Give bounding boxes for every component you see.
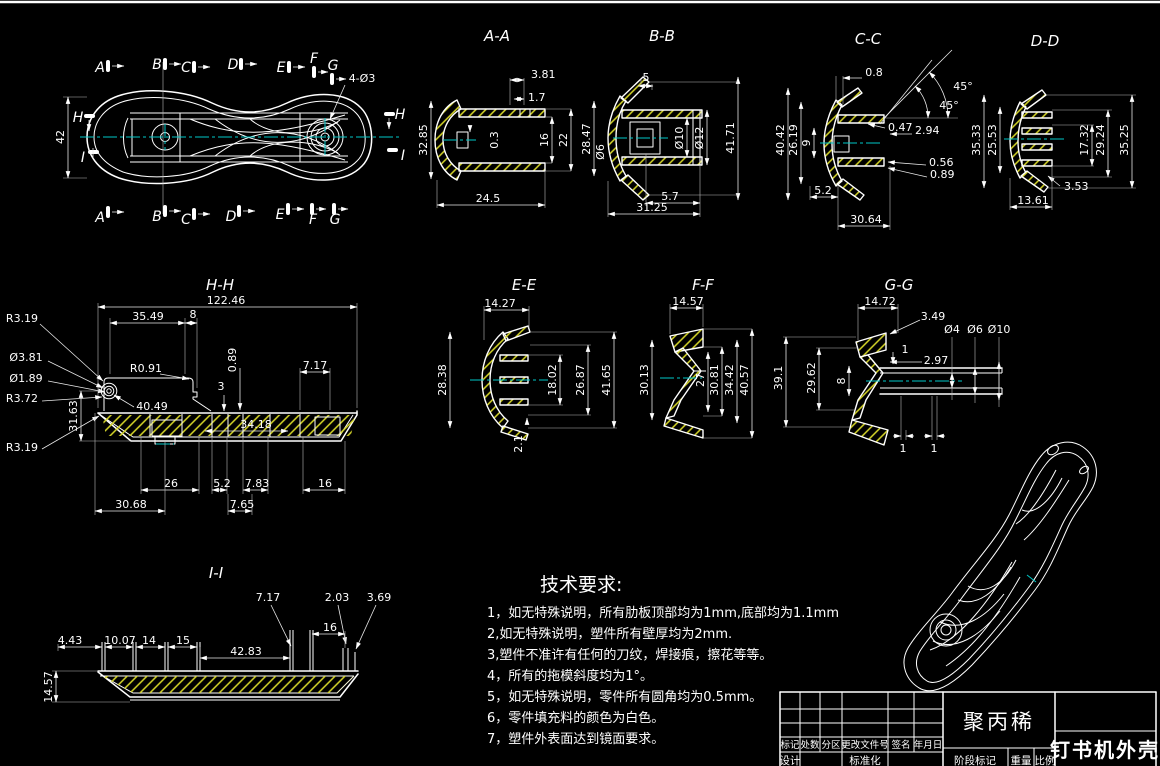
title-block-weight: 重量 — [1011, 754, 1033, 766]
dim-label: 18.02 — [546, 364, 559, 396]
dim-label: 35.33 — [970, 124, 983, 156]
dim-label: 16 — [323, 621, 337, 634]
cad-drawing: 42 4-Ø3 A B C D E F G A B C D E F G H — [0, 0, 1160, 766]
part-name: 钉书机外壳 — [1050, 738, 1160, 762]
dim-label: 35.25 — [1118, 124, 1131, 156]
title-block-col: 处数 — [800, 739, 820, 751]
dim-label: 42 — [54, 130, 67, 144]
dim-label: 2.1 — [512, 435, 525, 453]
tech-requirement-item: 2,如无特殊说明，塑件所有壁厚均为2mm. — [487, 626, 732, 642]
dim-label: 26.87 — [574, 364, 587, 396]
section-view-g-g: G-G 14.72 3.49 Ø4 Ø6 Ø10 1 2.97 8 39.1 2… — [772, 276, 1010, 455]
section-letter: F — [309, 212, 318, 228]
dim-label: 2.03 — [325, 591, 350, 604]
dim-label: 40.49 — [136, 400, 168, 413]
section-view-f-f: F-F 14.57 30.13 27 30.81 34.42 40.57 — [638, 276, 752, 438]
section-letter: H — [395, 107, 406, 123]
cad-drawing-canvas: 42 4-Ø3 A B C D E F G A B C D E F G H — [0, 0, 1160, 766]
material-name: 聚丙稀 — [963, 710, 1035, 734]
dim-label: 7.17 — [256, 591, 281, 604]
dim-label: R0.91 — [130, 362, 162, 375]
dim-label: R3.19 — [6, 441, 38, 454]
tech-requirements-title: 技术要求: — [540, 574, 622, 596]
dim-label: 8 — [835, 378, 848, 385]
section-letter: C — [181, 212, 191, 228]
dim-label: 8 — [190, 308, 197, 321]
dim-label: 1 — [902, 343, 909, 356]
dim-label: 3.53 — [1064, 180, 1089, 193]
dim-label: Ø1.89 — [9, 372, 42, 385]
dim-label: 5 — [643, 71, 650, 84]
dim-label: 14.27 — [484, 297, 516, 310]
section-view-b-b: B-B 5 28.47 Ø6 Ø10 Ø12 41.71 5.7 31.25 — [580, 27, 738, 217]
dim-label: 4-Ø3 — [349, 72, 376, 85]
section-letter: B — [152, 209, 162, 225]
dim-label: 30.13 — [638, 364, 651, 396]
dim-label: 14.57 — [672, 295, 704, 308]
section-view-d-d: D-D 35.33 25.53 17.32 29.24 35.25 3.53 1… — [970, 32, 1136, 210]
title-block-stage: 阶段标记 — [954, 754, 996, 766]
dim-label: 32.85 — [417, 124, 430, 156]
tech-requirement-item: 3,塑件不准许有任何的刀纹，焊接痕，擦花等等。 — [487, 647, 772, 663]
dim-label: 9 — [800, 140, 813, 147]
dim-label: 3.49 — [921, 310, 946, 323]
section-markers-top: A B C D E F G — [94, 51, 346, 85]
isometric-view — [904, 442, 1096, 691]
title-block-col: 年月日 — [914, 739, 943, 751]
dim-label: 2.94 — [915, 124, 940, 137]
dim-label: 29.24 — [1094, 124, 1107, 156]
dim-label: 45° — [939, 99, 959, 112]
title-block: 标记 处数 分区 更改文件号 签名 年月日 设计 标准化 聚丙稀 阶段标记 重量… — [780, 692, 1160, 766]
section-letter: A — [94, 210, 105, 226]
title-block-design: 设计 — [780, 754, 801, 766]
dim-label: Ø10 — [988, 323, 1011, 336]
dim-label: 16 — [538, 133, 551, 147]
dim-label: Ø12 — [693, 127, 706, 150]
dim-label: 15 — [176, 634, 190, 647]
dim-label: 22 — [557, 133, 570, 147]
dim-label: 5.2 — [814, 184, 832, 197]
dim-label: 3.81 — [531, 68, 556, 81]
section-letter: F — [310, 51, 319, 67]
section-letter: E — [276, 207, 285, 223]
dim-label: 28.47 — [580, 123, 593, 155]
view-title: F-F — [692, 276, 714, 294]
dim-label: 25.53 — [986, 124, 999, 156]
section-view-c-c: C-C 0.8 45° 45° 0.47 2.94 0.56 0.89 40.4… — [774, 30, 973, 230]
section-letter: D — [228, 57, 239, 73]
dim-label: 30.81 — [708, 364, 721, 396]
section-letter: I — [401, 148, 405, 164]
dim-label: R3.19 — [6, 312, 38, 325]
dim-label: 14.72 — [864, 295, 896, 308]
section-letter: C — [181, 60, 191, 76]
dim-label: 26.19 — [787, 124, 800, 156]
dim-label: 29.62 — [805, 362, 818, 394]
dim-label: 24.5 — [476, 192, 501, 205]
dim-label: 4.43 — [58, 634, 83, 647]
dim-label: 31.25 — [636, 201, 668, 214]
dim-label: 26 — [164, 477, 178, 490]
dim-label: 0.89 — [930, 168, 955, 181]
view-title: G-G — [885, 276, 914, 294]
view-title: C-C — [855, 30, 882, 48]
tech-requirement-item: 1，如无特殊说明，所有肋板顶部均为1mm,底部均为1.1mm — [487, 605, 839, 621]
dim-label: 30.68 — [115, 498, 147, 511]
dim-label: Ø10 — [673, 127, 686, 150]
title-block-col: 分区 — [821, 740, 841, 751]
plan-view: 42 4-Ø3 A B C D E F G A B C D E F G H — [54, 51, 406, 228]
dim-label: 3.69 — [367, 591, 392, 604]
dim-label: 2.97 — [924, 354, 949, 367]
dim-label: Ø6 — [594, 144, 607, 160]
dim-label: 31.63 — [67, 400, 80, 432]
dim-label: 3 — [218, 380, 225, 393]
dim-label: 1 — [900, 442, 907, 455]
dim-label: 122.46 — [207, 294, 246, 307]
view-title: B-B — [649, 27, 675, 45]
dim-label: 5.2 — [213, 477, 231, 490]
dim-label: 0.8 — [865, 66, 883, 79]
section-letter: I — [81, 150, 85, 166]
dim-label: 42.83 — [230, 645, 262, 658]
dim-label: 7.65 — [230, 498, 255, 511]
section-letter: B — [152, 57, 162, 73]
dim-label: 40.42 — [774, 124, 787, 156]
dim-label: 14 — [142, 634, 156, 647]
dim-label: 13.61 — [1017, 194, 1049, 207]
tech-requirement-item: 7，塑件外表面达到镜面要求。 — [487, 732, 664, 747]
view-title: I-I — [209, 564, 224, 582]
tech-requirement-item: 6，零件填充料的颜色为白色。 — [487, 710, 664, 726]
view-title: A-A — [483, 27, 510, 45]
dim-label: 10.07 — [104, 634, 136, 647]
dim-label: 34.42 — [723, 364, 736, 396]
dim-label: 27 — [694, 373, 707, 387]
dim-label: 35.49 — [132, 310, 164, 323]
section-letter: D — [226, 209, 237, 225]
tech-requirements: 技术要求: 1，如无特殊说明，所有肋板顶部均为1mm,底部均为1.1mm 2,如… — [487, 574, 839, 747]
title-block-col: 签名 — [891, 739, 910, 751]
dim-label: 7.17 — [303, 359, 328, 372]
dim-label: 16 — [318, 477, 332, 490]
dim-label: 17.32 — [1078, 124, 1091, 156]
view-title: H-H — [206, 276, 234, 294]
dim-label: 41.65 — [600, 364, 613, 396]
section-letter: H — [73, 110, 84, 126]
dim-label: 14.57 — [42, 671, 55, 703]
view-title: D-D — [1031, 32, 1060, 50]
section-view-i-i: I-I 7.17 2.03 3.69 16 4.43 10.07 14 15 4… — [42, 564, 391, 703]
dim-label: 28.38 — [436, 364, 449, 396]
dim-label: 1 — [931, 442, 938, 455]
dim-label: 0.47 — [888, 121, 913, 134]
dim-label: 30.64 — [850, 213, 882, 226]
section-letter: G — [328, 58, 339, 74]
dim-label: 41.71 — [724, 122, 737, 154]
dim-label: 0.3 — [488, 131, 501, 149]
section-letter: E — [277, 60, 286, 76]
title-block-standard: 标准化 — [849, 754, 881, 766]
tech-requirement-item: 4，所有的拖模斜度均为1°。 — [487, 668, 653, 684]
dim-label: Ø3.81 — [9, 351, 42, 364]
dim-label: R3.72 — [6, 392, 38, 405]
section-letter: A — [94, 60, 105, 76]
dim-label: 0.89 — [226, 348, 239, 373]
section-view-a-a: A-A 3.81 1.7 32.85 0.3 16 22 24.5 — [417, 27, 571, 208]
view-title: E-E — [512, 276, 537, 294]
dim-label: 7.83 — [245, 477, 270, 490]
dim-label: 40.57 — [738, 364, 751, 396]
dim-label: Ø4 — [944, 323, 960, 336]
section-view-e-e: E-E 14.27 28.38 18.02 26.87 41.65 2.1 — [436, 276, 617, 453]
dim-label: Ø6 — [967, 323, 983, 336]
section-view-h-h: H-H 122.46 35.49 8 R3.19 Ø3.81 Ø1.89 R3.… — [6, 276, 357, 515]
tech-requirement-item: 5，如无特殊说明，零件所有圆角均为0.5mm。 — [487, 689, 762, 705]
dim-label: 45° — [953, 80, 973, 93]
dim-label: 1.7 — [528, 91, 546, 104]
section-markers-bottom: A B C D E F G — [94, 203, 348, 228]
dim-label: 39.1 — [772, 366, 785, 391]
title-block-col: 更改文件号 — [841, 739, 889, 751]
dim-label: 34.18 — [240, 418, 272, 431]
title-block-col: 标记 — [780, 739, 800, 751]
